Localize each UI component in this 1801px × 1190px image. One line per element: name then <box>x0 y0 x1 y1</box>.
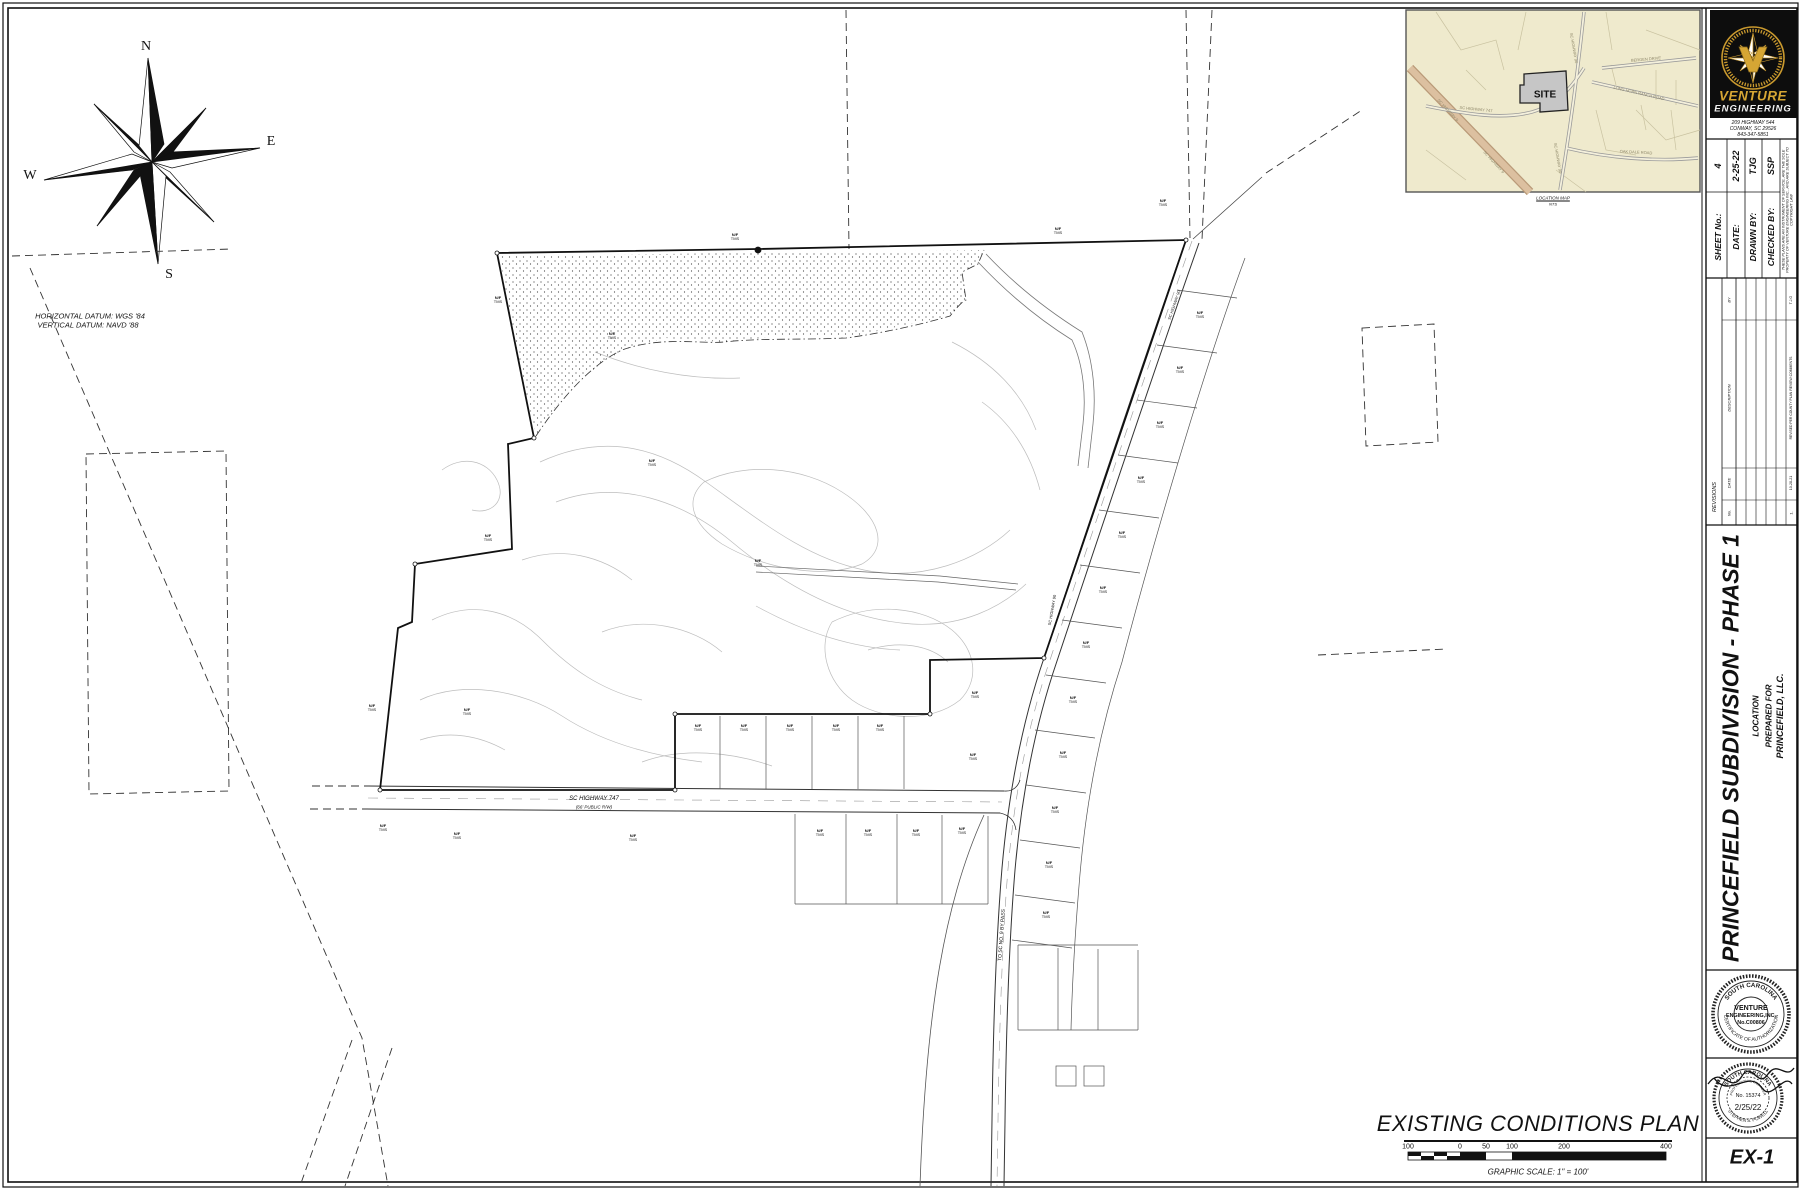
revisions-title: REVISIONS <box>1712 482 1718 512</box>
parcel-label: N/FTMS <box>1069 696 1077 704</box>
scale-tick-label: 100 <box>1402 1144 1414 1151</box>
scale-tick-label: 100 <box>1506 1144 1518 1151</box>
highway-747-label: SC HIGHWAY 747 <box>569 796 619 802</box>
sheet-no-label: SHEET No.: <box>1713 213 1723 260</box>
revision1-no: 1. <box>1789 511 1794 514</box>
revisions-date-label: DATE <box>1727 478 1732 488</box>
parcel-label: N/FTMS <box>754 559 762 567</box>
parcel-label: N/FTMS <box>816 829 824 837</box>
parcel-label: N/FTMS <box>368 704 376 712</box>
site-label: SITE <box>1532 90 1558 101</box>
checked-by-label: CHECKED BY: <box>1766 208 1776 267</box>
venture-logo-icon <box>1722 27 1784 89</box>
firm-name: VENTURE <box>1719 89 1787 104</box>
road-sc90 <box>920 240 1199 1186</box>
parcel-label: N/FTMS <box>1082 641 1090 649</box>
drainage-channel <box>978 254 1094 468</box>
location-map-caption: LOCATION MAP <box>1536 196 1570 201</box>
compass-e: E <box>267 134 276 150</box>
parcel-label: N/FTMS <box>608 332 616 340</box>
sheet-id: EX-1 <box>1730 1147 1774 1170</box>
parcel-label: N/FTMS <box>832 724 840 732</box>
client-name: PRINCEFIELD, LLC. <box>1775 674 1785 759</box>
road-sc747 <box>366 780 1020 830</box>
parcel-label: N/FTMS <box>731 233 739 241</box>
graphic-scale-caption: GRAPHIC SCALE: 1" = 100' <box>1488 1168 1589 1177</box>
pe-seal: SOUTH CAROLINA PROFESSIONAL ENGINEER STE… <box>1708 1064 1794 1132</box>
existing-dashed-lines <box>12 10 1446 1186</box>
parcel-label: N/FTMS <box>494 296 502 304</box>
lot-strips <box>720 716 988 904</box>
firm-name2: ENGINEERING <box>1714 104 1792 115</box>
location-map-scale-note: NTS <box>1549 202 1557 207</box>
parcel-label: N/FTMS <box>1042 911 1050 919</box>
contour-lines <box>420 342 1040 766</box>
location-map-inset <box>1406 10 1700 192</box>
datum-vertical: VERTICAL DATUM: NAVD '88 <box>37 321 138 330</box>
scale-tick-label: 50 <box>1482 1144 1490 1151</box>
datum-horizontal: HORIZONTAL DATUM: WGS '84 <box>35 312 145 321</box>
plan-sheet: SOUTH CAROLINA CERTIFICATE OF AUTHORIZAT… <box>0 0 1801 1190</box>
parcel-label: N/FTMS <box>379 824 387 832</box>
drawn-by-value: TJG <box>1748 157 1758 175</box>
project-title: PRINCEFIELD SUBDIVISION - PHASE 1 <box>1718 534 1745 962</box>
compass-rose-icon <box>44 58 260 264</box>
plan-linework: SOUTH CAROLINA CERTIFICATE OF AUTHORIZAT… <box>0 0 1801 1190</box>
compass-w: W <box>23 168 36 184</box>
parcel-label: N/FTMS <box>1054 227 1062 235</box>
parcel-label: N/FTMS <box>864 829 872 837</box>
prepared-for-label: PREPARED FOR <box>1765 685 1774 748</box>
graphic-scale-bar <box>1404 1141 1672 1160</box>
svg-text:VENTURE: VENTURE <box>1734 1005 1768 1012</box>
svg-text:2/25/22: 2/25/22 <box>1735 1103 1762 1112</box>
parcel-label: N/FTMS <box>958 827 966 835</box>
revisions-by-label: BY <box>1727 297 1732 302</box>
parcel-label: N/FTMS <box>1156 421 1164 429</box>
revision1-description: REVISED PER COUNTY PLAN REVIEW COMMENTS <box>1789 357 1793 440</box>
parcel-label: N/FTMS <box>912 829 920 837</box>
plan-title: EXISTING CONDITIONS PLAN <box>1377 1111 1700 1137</box>
sheet-no-value: 4 <box>1713 163 1723 168</box>
parcel-label: N/FTMS <box>484 534 492 542</box>
checked-by-value: SSP <box>1766 157 1776 175</box>
lot-lines-east <box>1012 258 1245 1086</box>
svg-text:SOUTH CAROLINA: SOUTH CAROLINA <box>1724 982 1779 1002</box>
wetland-area <box>500 250 984 436</box>
firm-seal: SOUTH CAROLINA CERTIFICATE OF AUTHORIZAT… <box>1713 976 1789 1052</box>
svg-text:No. 15374: No. 15374 <box>1736 1093 1761 1099</box>
parcel-label: N/FTMS <box>694 724 702 732</box>
compass-s: S <box>165 267 173 283</box>
date-value: 2-25-22 <box>1731 150 1741 181</box>
parcel-label: N/FTMS <box>1059 751 1067 759</box>
parcel-label: N/FTMS <box>648 459 656 467</box>
parcel-label: N/FTMS <box>740 724 748 732</box>
revision1-date: 10-28-21 <box>1789 476 1793 490</box>
compass-n: N <box>141 39 151 55</box>
revision1-by: T.J.G <box>1789 296 1793 304</box>
parcel-label: N/FTMS <box>1045 861 1053 869</box>
svg-text:SOUTH CAROLINA: SOUTH CAROLINA <box>1724 1070 1773 1088</box>
revisions-no-label: No. <box>1727 510 1732 516</box>
date-label: DATE: <box>1731 224 1741 249</box>
highway-747-rw-label: (66' PUBLIC R/W) <box>576 805 612 810</box>
parcel-label: N/FTMS <box>1196 311 1204 319</box>
parcel-label: N/FTMS <box>786 724 794 732</box>
parcel-label: N/FTMS <box>1099 586 1107 594</box>
parcel-label: N/FTMS <box>971 691 979 699</box>
parcel-label: N/FTMS <box>876 724 884 732</box>
project-location-label: LOCATION <box>1752 695 1761 736</box>
drawn-by-label: DRAWN BY: <box>1748 213 1758 262</box>
parcel-label: N/FTMS <box>969 753 977 761</box>
parcel-label: N/FTMS <box>1159 199 1167 207</box>
parcel-label: N/FTMS <box>1137 476 1145 484</box>
svg-text:ENGINEERING,INC.: ENGINEERING,INC. <box>1726 1013 1777 1019</box>
parcel-label: N/FTMS <box>629 834 637 842</box>
svg-text:No.C00806: No.C00806 <box>1737 1020 1765 1026</box>
scale-tick-label: 400 <box>1660 1144 1672 1151</box>
parcel-label: N/FTMS <box>1176 366 1184 374</box>
revisions-description-label: DESCRIPTION <box>1727 384 1732 411</box>
scale-tick-label: 0 <box>1458 1144 1462 1151</box>
copyright-disclaimer: THESE PLANS ARE AN INSTRUMENT OF SERVICE… <box>1782 145 1795 275</box>
firm-phone: 843-347-5851 <box>1737 132 1768 138</box>
parcel-label: N/FTMS <box>463 708 471 716</box>
parcel-label: N/FTMS <box>1118 531 1126 539</box>
scale-tick-label: 200 <box>1558 1144 1570 1151</box>
parcel-label: N/FTMS <box>453 832 461 840</box>
parcel-label: N/FTMS <box>1051 806 1059 814</box>
